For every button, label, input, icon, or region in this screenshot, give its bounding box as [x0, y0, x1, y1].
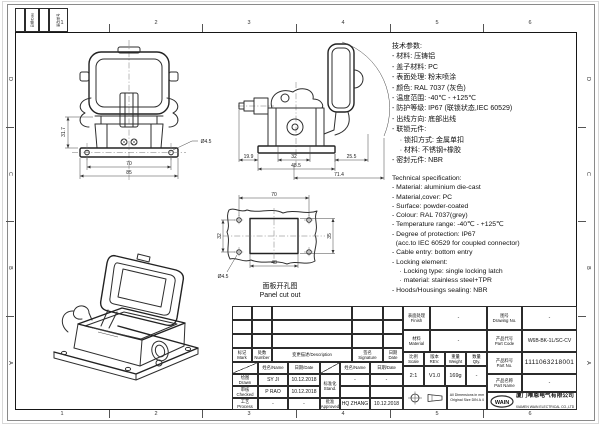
header-mark: 标记 Mark [232, 348, 252, 362]
zone-tick [296, 24, 297, 32]
revision-cell [252, 334, 272, 348]
note-line: - 出线方向: 底部出线 [392, 115, 512, 125]
bale-peg-left [80, 72, 89, 81]
zone-letter: D [5, 74, 14, 84]
corner-cell-date: 日期/Date [25, 8, 39, 32]
corner-revision-block: 日期/Date 更改单号 [15, 8, 68, 32]
dim-bottom: 48 [271, 260, 277, 266]
zone-letter: D [583, 74, 592, 84]
corner-cell-change: 更改单号 [49, 8, 68, 32]
standardized-date: - [370, 374, 403, 386]
note-line: - 防护等级: IP67 (联锁状态,IEC 60529) [392, 104, 512, 114]
extension-line [65, 117, 93, 148]
zone-tick [202, 410, 203, 418]
cover-outer [101, 256, 184, 326]
note-line: - Temperature range: -40℃ - +125℃ [392, 220, 520, 229]
note-line: - Locking element: [392, 258, 520, 267]
zone-tick [578, 221, 586, 222]
flange-hole [185, 347, 190, 350]
zone-tick [578, 127, 586, 128]
zone-tick [6, 221, 14, 222]
note-line: - 表面处理: 粉末喷涂 [392, 73, 512, 83]
drawing-no-label: 图号 Drawing No. [487, 306, 522, 330]
revision-cell [252, 306, 272, 320]
weight-value: 169g [445, 366, 466, 386]
diagonal-cell [232, 362, 258, 374]
technical-notes-en: Technical specification: - Material: alu… [392, 174, 520, 295]
company-name-cn: 厦门唯恩电气有限公司 [516, 393, 574, 400]
zone-number: 1 [56, 411, 68, 417]
flange-hole [61, 351, 66, 354]
zone-letter: A [5, 358, 14, 368]
zone-number: 3 [243, 411, 255, 417]
revision-cell [272, 320, 352, 334]
rev-label: 版本 REV. [424, 352, 445, 366]
part-name-label: 产品名称 Part Name [487, 374, 522, 392]
revision-cell [383, 306, 403, 320]
revision-cell [272, 306, 352, 320]
screw-cross [122, 140, 126, 144]
zone-tick [390, 410, 391, 418]
side-view: 19.9 32 48.5 25.5 71.4 [238, 36, 390, 188]
checked-name: P RAO [258, 386, 288, 398]
diagonal-cell [320, 362, 340, 374]
flange-hole [125, 367, 130, 370]
empty-cell [370, 386, 403, 398]
flange-thickness [54, 348, 198, 380]
qty-value: - [466, 366, 487, 386]
weight-label: 重量 Weight [445, 352, 466, 366]
cable-gland-hole [154, 344, 166, 358]
corner-cell [15, 8, 25, 32]
approved-date: 10.12.2018 [370, 398, 403, 410]
lever-pivot-center [292, 124, 298, 130]
cover-panel [118, 269, 166, 307]
dim-left: 32 [217, 233, 223, 239]
empty-cell [340, 386, 370, 398]
subheader-name: 姓名/Name [258, 362, 288, 374]
scale-label: 比例 Scale [403, 352, 424, 366]
part-no-label: 产品料号 Part No. [487, 352, 522, 374]
header-description: 变更描述/Description [272, 348, 352, 362]
note-line: - Material,cover: PC [392, 193, 520, 202]
zone-tick [6, 127, 14, 128]
part-name-value: - [522, 374, 577, 392]
panel-caption-en: Panel cut out [228, 292, 332, 299]
wain-logo-text: WAIN [495, 399, 509, 405]
zone-number: 4 [337, 411, 349, 417]
lever-detail [281, 94, 289, 102]
note-line: · Locking type: single locking latch [392, 267, 520, 276]
part-no-value: 1111063218001 [522, 352, 577, 374]
cover-inner [332, 48, 350, 108]
revision-cell [272, 334, 352, 348]
revision-cell [352, 334, 383, 348]
material-value: - [430, 330, 487, 352]
zone-tick [296, 410, 297, 418]
scale-value: 2:1 [403, 366, 424, 386]
note-line: · material: stainless steel+TPR [392, 276, 520, 285]
dim-right: 35 [327, 233, 333, 239]
note-line: (acc.to IEC 60529 for coupled connector) [392, 239, 520, 248]
note-line: · 锁扣方式: 金属单扣 [392, 136, 512, 146]
company-cell: WAIN 厦门唯恩电气有限公司 XIAMEN WAIN ELECTRICAL C… [487, 392, 577, 410]
dim-cover: 25.5 [347, 154, 357, 160]
notes-en-title: Technical specification: [392, 174, 520, 183]
panel-outline [227, 209, 317, 264]
zone-tick [390, 24, 391, 32]
standardized-label: 标准化 Stand. [320, 374, 340, 398]
revision-cell [352, 320, 383, 334]
part-code-label: 产品代号 Part Code [487, 330, 522, 352]
note-line: - Cable entry: bottom entry [392, 248, 520, 257]
revision-cell [383, 320, 403, 334]
note-line: - 温度范围: -40℃ - +125℃ [392, 94, 512, 104]
zone-tick [578, 316, 586, 317]
notes-cn-title: 技术参数: [392, 42, 512, 52]
zone-tick [109, 24, 110, 32]
revision-cell [232, 320, 252, 334]
locking-lever [271, 89, 322, 108]
note-line: - 盖子材料: PC [392, 63, 512, 73]
qty-label: 数量 Qty. [466, 352, 487, 366]
material-label: 材料 Material [403, 330, 430, 352]
zone-letter: A [583, 358, 592, 368]
note-line: - 联锁元件: [392, 125, 512, 135]
checked-date: 10.12.2018 [288, 386, 320, 398]
dim-gland: 19.9 [244, 154, 254, 160]
company-name-en: XIAMEN WAIN ELECTRICAL CO.,LTD [516, 405, 574, 409]
subheader-date: 日期/Date [370, 362, 403, 374]
dim-total-depth: 71.4 [334, 172, 344, 178]
subheader-name: 姓名/Name [340, 362, 370, 374]
cover-hinge-arm [324, 112, 349, 135]
zone-letter: C [583, 169, 592, 179]
dim-height: 31.7 [61, 127, 67, 137]
drawn-label: 绘图 Drawn [232, 374, 258, 386]
zone-tick [109, 410, 110, 418]
revision-cell [232, 306, 252, 320]
zone-number: 2 [150, 20, 162, 26]
zone-number: 6 [524, 411, 536, 417]
zone-number: 4 [337, 20, 349, 26]
leader-line [227, 255, 237, 272]
corner-cell [39, 8, 49, 32]
cable-gland-boss [149, 339, 170, 363]
note-line: - Material: aluminium die-cast [392, 183, 520, 192]
dim-hole-spacing: 70 [126, 161, 132, 167]
bale-peg-right [169, 72, 178, 81]
note-line: - Colour: RAL 7037(grey) [392, 211, 520, 220]
dim-body-depth: 48.5 [291, 163, 301, 169]
dimensions-note-line2: Original Size DIN A 4 [450, 398, 484, 403]
zone-number: 3 [243, 20, 255, 26]
approved-label: 批准 Approved [320, 398, 340, 410]
header-date: 日期 Date [383, 348, 403, 362]
zone-number: 6 [524, 20, 536, 26]
front-view: 31.7 70 85 Ø4.5 [45, 36, 245, 186]
note-line: - 密封元件: NBR [392, 156, 512, 166]
projection-symbol-cell [403, 386, 447, 410]
zone-tick [202, 24, 203, 32]
note-line: · 材料: 不锈钢+橡胶 [392, 146, 512, 156]
zone-number: 5 [431, 20, 443, 26]
technical-notes-cn: 技术参数: - 材料: 压铸铝 - 盖子材料: PC - 表面处理: 粉末喷涂 … [392, 42, 512, 167]
drawn-name: SY JI [258, 374, 288, 386]
zone-letter: C [5, 169, 14, 179]
finish-label: 表面处理 Finish [403, 306, 430, 330]
revision-cell [232, 334, 252, 348]
zone-tick [6, 316, 14, 317]
drawing-sheet: 1 2 3 4 5 6 1 2 3 4 5 6 D C B A D C B A … [0, 0, 600, 424]
dim-hole-diameter: Ø4.5 [218, 274, 229, 280]
lever-pivot [287, 119, 303, 135]
note-line: - Hoods/Housings sealing: NBR [392, 286, 520, 295]
dimensions-note-cell: All Dimensions in mm Original Size DIN A… [447, 386, 487, 410]
zone-tick [483, 410, 484, 418]
panel-caption-cn: 面板开孔图 [228, 281, 332, 291]
zone-number: 5 [431, 411, 443, 417]
isometric-view [38, 248, 218, 400]
mounting-flange [258, 146, 335, 153]
first-angle-cone-icon [426, 392, 444, 404]
note-line: - 颜色: RAL 7037 (灰色) [392, 84, 512, 94]
wain-logo: WAIN [490, 395, 514, 408]
header-number: 处数 Number [252, 348, 272, 362]
zone-tick [483, 24, 484, 32]
note-line: - 材料: 压铸铝 [392, 52, 512, 62]
note-line: - Surface: powder-coated [392, 202, 520, 211]
revision-cell [383, 334, 403, 348]
dim-width: 85 [126, 170, 132, 176]
header-signature: 签名 Signature [352, 348, 383, 362]
process-label: 工艺 Process [232, 398, 258, 410]
first-angle-circle-icon [407, 391, 423, 405]
dim-top: 70 [271, 192, 277, 198]
standardized-name: - [340, 374, 370, 386]
zone-number: 2 [150, 411, 162, 417]
cover-knuckle [354, 70, 363, 88]
zone-letter: B [583, 263, 592, 273]
process-name: - [258, 398, 288, 410]
drawn-date: 10.12.2018 [288, 374, 320, 386]
subheader-date: 日期/Date [288, 362, 320, 374]
rev-value: V1.0 [424, 366, 445, 386]
zone-letter: B [5, 263, 14, 273]
part-code-value: W6B-BK-1L/SC-CV [522, 330, 577, 352]
drawing-no-value: - [522, 306, 577, 330]
mounting-hole [169, 150, 174, 155]
dim-inner: 32 [291, 154, 297, 160]
dim-hole-diameter: Ø4.5 [201, 139, 212, 145]
checked-label: 审核 Checked [232, 386, 258, 398]
revision-cell [352, 306, 383, 320]
title-block: 标记 Mark 处数 Number 变更描述/Description 签名 Si… [232, 306, 577, 410]
approved-name: HQ ZHANG [340, 398, 370, 410]
finish-value: - [430, 306, 487, 330]
panel-cutout-view: 70 48 32 35 Ø4.5 [213, 186, 348, 282]
note-line: - Degree of protection: IP67 [392, 230, 520, 239]
screw-cross [132, 140, 136, 144]
process-date: - [288, 398, 320, 410]
revision-cell [252, 320, 272, 334]
